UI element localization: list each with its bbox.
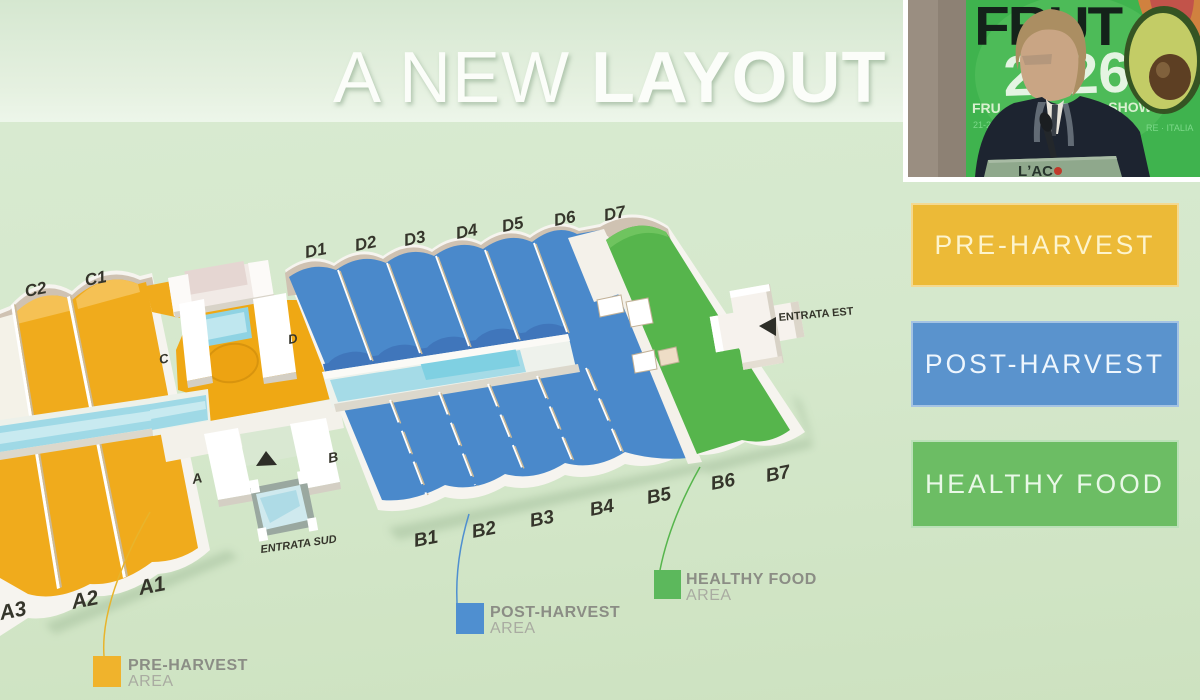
svg-text:RE · ITALIA: RE · ITALIA (1146, 123, 1193, 133)
svg-text:B2: B2 (470, 518, 498, 543)
svg-text:B7: B7 (764, 461, 793, 487)
svg-text:B6: B6 (709, 470, 737, 495)
svg-text:D4: D4 (454, 220, 479, 243)
svg-text:C1: C1 (83, 267, 108, 290)
svg-text:A1: A1 (136, 572, 168, 600)
svg-text:B5: B5 (645, 484, 673, 509)
svg-text:D1: D1 (303, 239, 328, 262)
svg-text:B: B (327, 448, 340, 466)
svg-text:B3: B3 (528, 507, 556, 532)
svg-text:D2: D2 (353, 232, 378, 255)
svg-text:FRU: FRU (972, 100, 1001, 116)
svg-text:ENTRATA SUD: ENTRATA SUD (260, 533, 338, 556)
svg-text:B1: B1 (412, 527, 440, 552)
svg-text:A3: A3 (0, 597, 29, 625)
svg-text:B4: B4 (588, 496, 616, 521)
